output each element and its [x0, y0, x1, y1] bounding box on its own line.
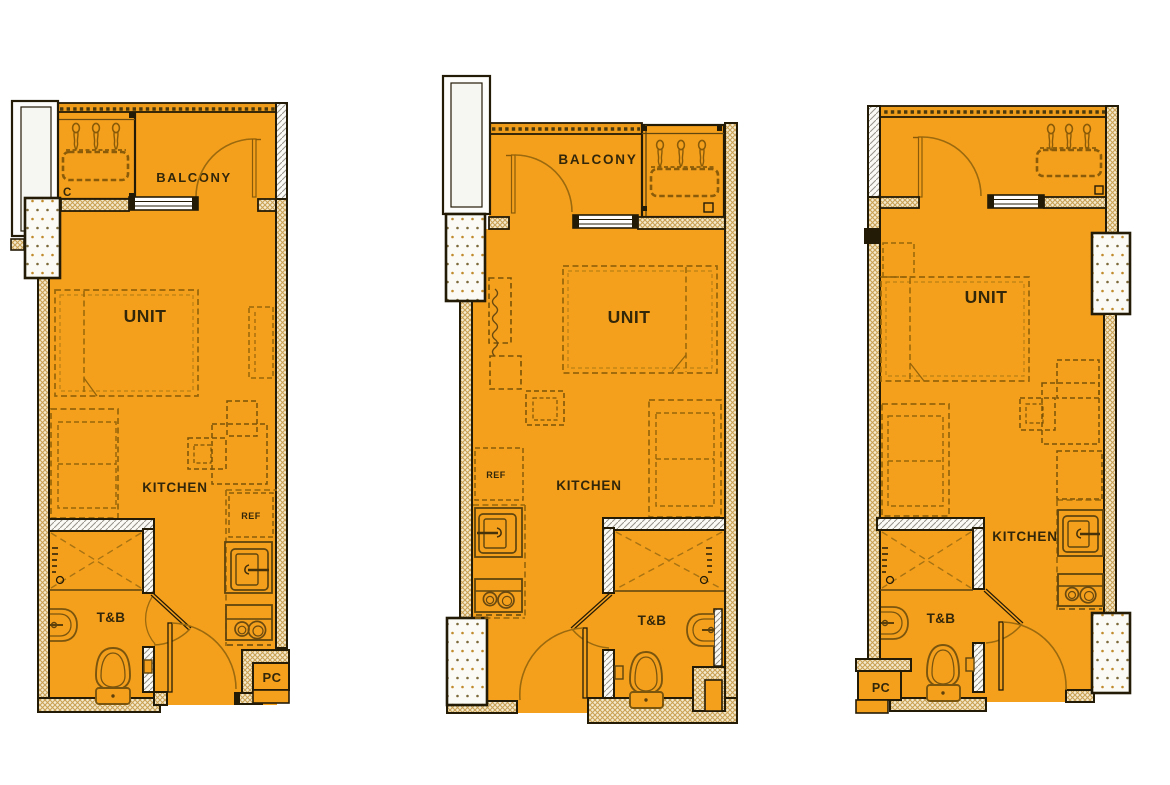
- svg-text:T&B: T&B: [97, 610, 126, 625]
- svg-text:REF: REF: [241, 511, 261, 521]
- svg-text:KITCHEN: KITCHEN: [556, 478, 622, 493]
- svg-text:C: C: [63, 187, 71, 199]
- svg-text:UNIT: UNIT: [608, 307, 651, 327]
- svg-text:BALCONY: BALCONY: [558, 152, 637, 167]
- svg-text:UNIT: UNIT: [965, 287, 1008, 307]
- svg-text:PC: PC: [262, 670, 281, 685]
- svg-text:T&B: T&B: [927, 611, 956, 626]
- svg-text:T&B: T&B: [638, 613, 667, 628]
- svg-text:REF: REF: [486, 470, 506, 480]
- svg-text:BALCONY: BALCONY: [156, 170, 231, 185]
- svg-text:PC: PC: [872, 681, 890, 695]
- svg-text:KITCHEN: KITCHEN: [142, 480, 208, 495]
- svg-text:UNIT: UNIT: [124, 306, 167, 326]
- svg-text:KITCHEN: KITCHEN: [992, 529, 1058, 544]
